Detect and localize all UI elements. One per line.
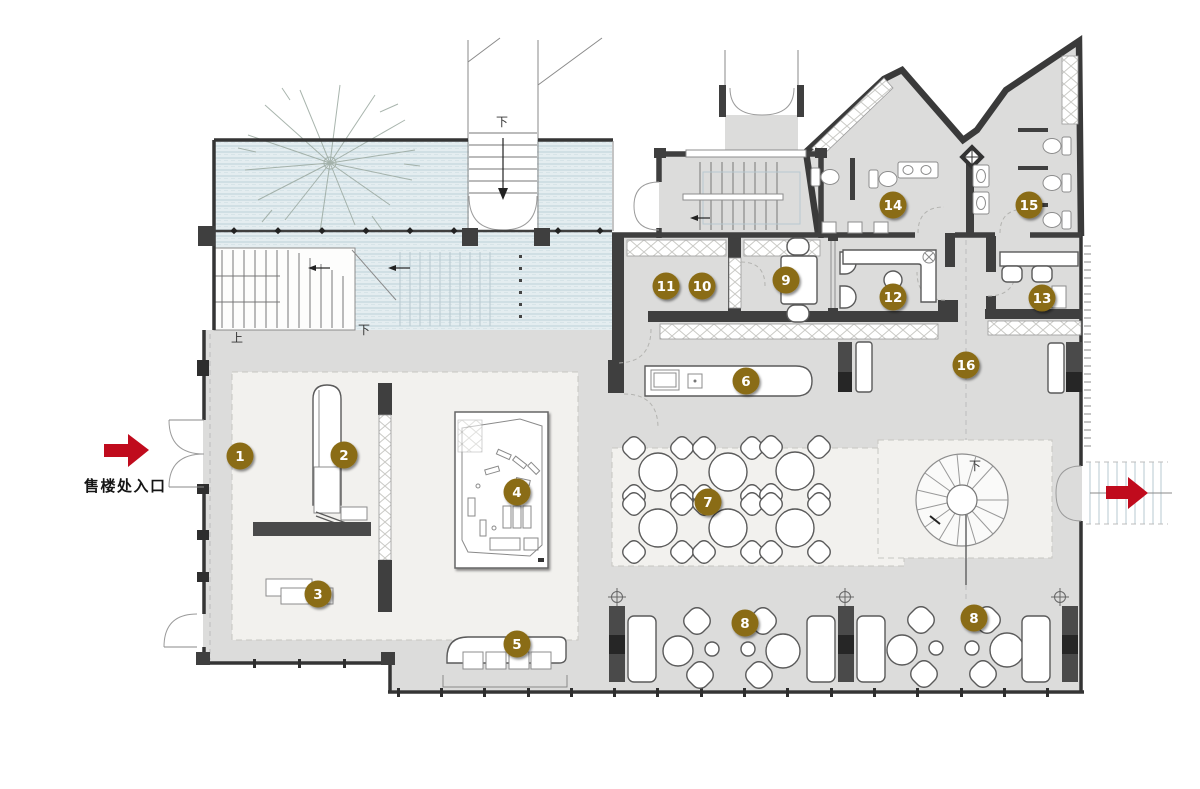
area-marker-14: 14 — [880, 192, 907, 219]
marker-number: 13 — [1033, 291, 1052, 307]
area-marker-5: 5 — [504, 631, 531, 658]
area-marker-16: 16 — [953, 352, 980, 379]
area-marker-12: 12 — [880, 284, 907, 311]
glazing-right-strip — [1062, 56, 1078, 124]
marker-number: 14 — [884, 198, 903, 214]
marker-number: 7 — [703, 495, 712, 511]
vestibule-floor — [725, 115, 798, 155]
area-marker-13: 13 — [1029, 285, 1056, 312]
marker-number: 3 — [313, 587, 322, 603]
area-marker-15: 15 — [1016, 192, 1043, 219]
marker-number: 11 — [657, 279, 676, 295]
marker-number: 8 — [740, 616, 749, 632]
marker-number: 5 — [512, 637, 521, 653]
marker-number: 6 — [741, 374, 750, 390]
area-marker-9: 9 — [773, 267, 800, 294]
stair-down-label-3: 下 — [969, 459, 981, 473]
floor-plan-page: 下 上 下 — [0, 0, 1200, 789]
area-marker-1: 1 — [227, 443, 254, 470]
area-marker-4: 4 — [504, 479, 531, 506]
marker-number: 4 — [512, 485, 521, 501]
top-entrance-vestibule — [719, 50, 804, 117]
entrance-arrow-icon — [104, 434, 149, 467]
model-table — [455, 412, 548, 568]
stair-up-label: 上 — [231, 331, 243, 345]
area-marker-7: 7 — [695, 489, 722, 516]
area-marker-10: 10 — [689, 273, 716, 300]
marker-number: 8 — [969, 611, 978, 627]
area-marker-3: 3 — [305, 581, 332, 608]
area-marker-11: 11 — [653, 273, 680, 300]
area-marker-2: 2 — [331, 442, 358, 469]
floor-plan-drawing: 下 上 下 — [0, 0, 1200, 789]
exit-arrow-icon — [1106, 477, 1148, 509]
marker-number: 16 — [957, 358, 976, 374]
marker-number: 9 — [781, 273, 790, 289]
stair-down-label: 下 — [496, 115, 508, 129]
area-marker-8b: 8 — [961, 605, 988, 632]
left-entrance: 售楼处入口 — [84, 434, 167, 495]
marker-number: 10 — [693, 279, 712, 295]
marker-number: 2 — [339, 448, 348, 464]
area-marker-8a: 8 — [732, 610, 759, 637]
stair-down-label-2: 下 — [358, 323, 370, 337]
marker-number: 1 — [235, 449, 244, 465]
entrance-label: 售楼处入口 — [84, 477, 167, 495]
marker-number: 15 — [1020, 198, 1039, 214]
bar-counter — [645, 366, 812, 396]
marker-number: 12 — [884, 290, 903, 306]
area-marker-6: 6 — [733, 368, 760, 395]
